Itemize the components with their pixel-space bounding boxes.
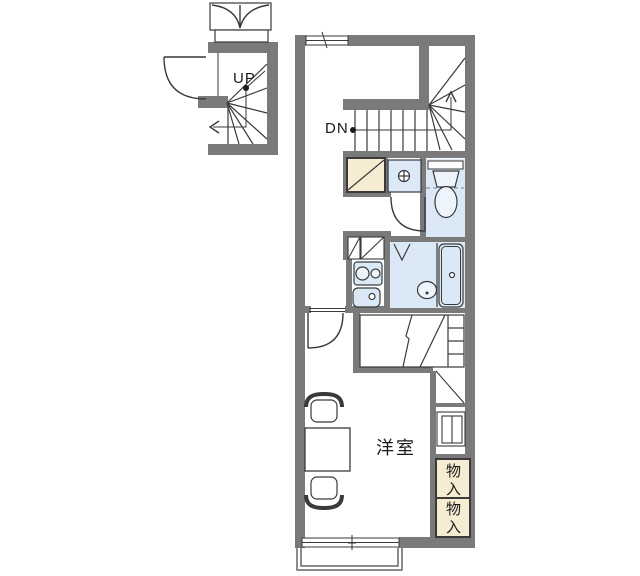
bathroom (390, 242, 465, 308)
wall (343, 231, 348, 260)
outer-wall-bottom (399, 537, 475, 548)
balcony (297, 548, 402, 570)
entry-door (164, 53, 218, 99)
table-icon (305, 428, 350, 471)
toilet-shelf (428, 161, 463, 169)
washbasin-icon (388, 160, 421, 192)
chair-seat (311, 477, 337, 499)
window-top (306, 32, 348, 48)
outer-wall-bottom (295, 537, 302, 548)
room-door (308, 309, 345, 349)
outer-wall-top (348, 35, 475, 46)
bath-drain (418, 282, 437, 299)
appliance-space (348, 237, 384, 259)
room-label: 洋室 (376, 439, 416, 457)
wall (198, 96, 228, 108)
outer-wall-left (295, 35, 305, 548)
sink-icon (353, 288, 380, 307)
stair-wall (343, 151, 465, 158)
window-bottom (302, 535, 399, 550)
storage-label-top: 物入 (445, 463, 460, 499)
wall (384, 236, 390, 310)
bed-icon (360, 315, 464, 367)
stairs-down-label: DN (325, 121, 349, 136)
wall (346, 258, 352, 310)
closet-space (436, 371, 465, 403)
toilet-icon (433, 171, 459, 218)
laundry-space (347, 158, 385, 192)
dining-set (305, 394, 350, 508)
wall (343, 231, 391, 237)
wall (353, 313, 360, 372)
door-arc (391, 197, 425, 231)
stair-wall (419, 45, 429, 105)
floor-plan: UP DN 洋室 物入 物入 (0, 0, 640, 576)
stove-icon (354, 262, 382, 285)
entry-double-door (210, 3, 271, 42)
wall (267, 42, 278, 155)
door-arc (308, 313, 343, 348)
entry-step (215, 30, 268, 42)
floor-plan-drawing (0, 0, 640, 576)
toilet-room (426, 159, 465, 237)
walk-start-dot (350, 127, 356, 133)
cabinet-icon (437, 412, 465, 446)
door-arc (164, 57, 206, 99)
bathtub-icon (439, 244, 463, 307)
kitchen (353, 262, 382, 307)
wall (208, 144, 278, 155)
chair-seat (311, 400, 337, 422)
washroom-door (391, 197, 425, 231)
stair-wall (343, 99, 429, 110)
stairs-up-label: UP (233, 71, 256, 86)
storage-label-bottom: 物入 (445, 501, 460, 537)
